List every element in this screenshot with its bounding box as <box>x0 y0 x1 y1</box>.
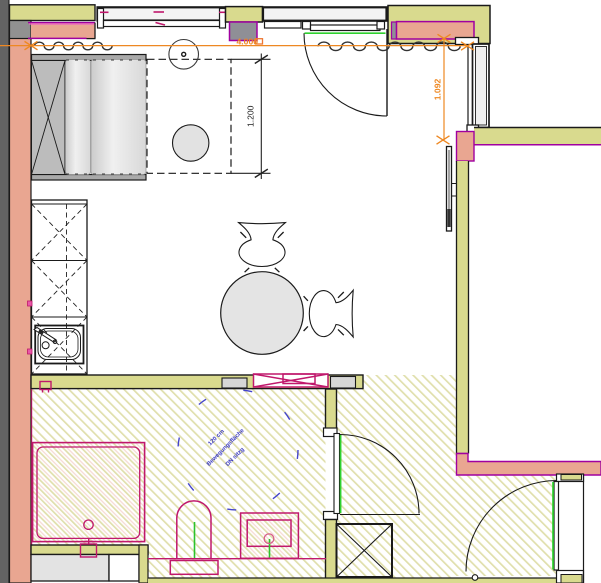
svg-text:4.000: 4.000 <box>237 37 259 47</box>
svg-text:1.200: 1.200 <box>246 105 256 127</box>
svg-text:1.092: 1.092 <box>433 79 443 101</box>
